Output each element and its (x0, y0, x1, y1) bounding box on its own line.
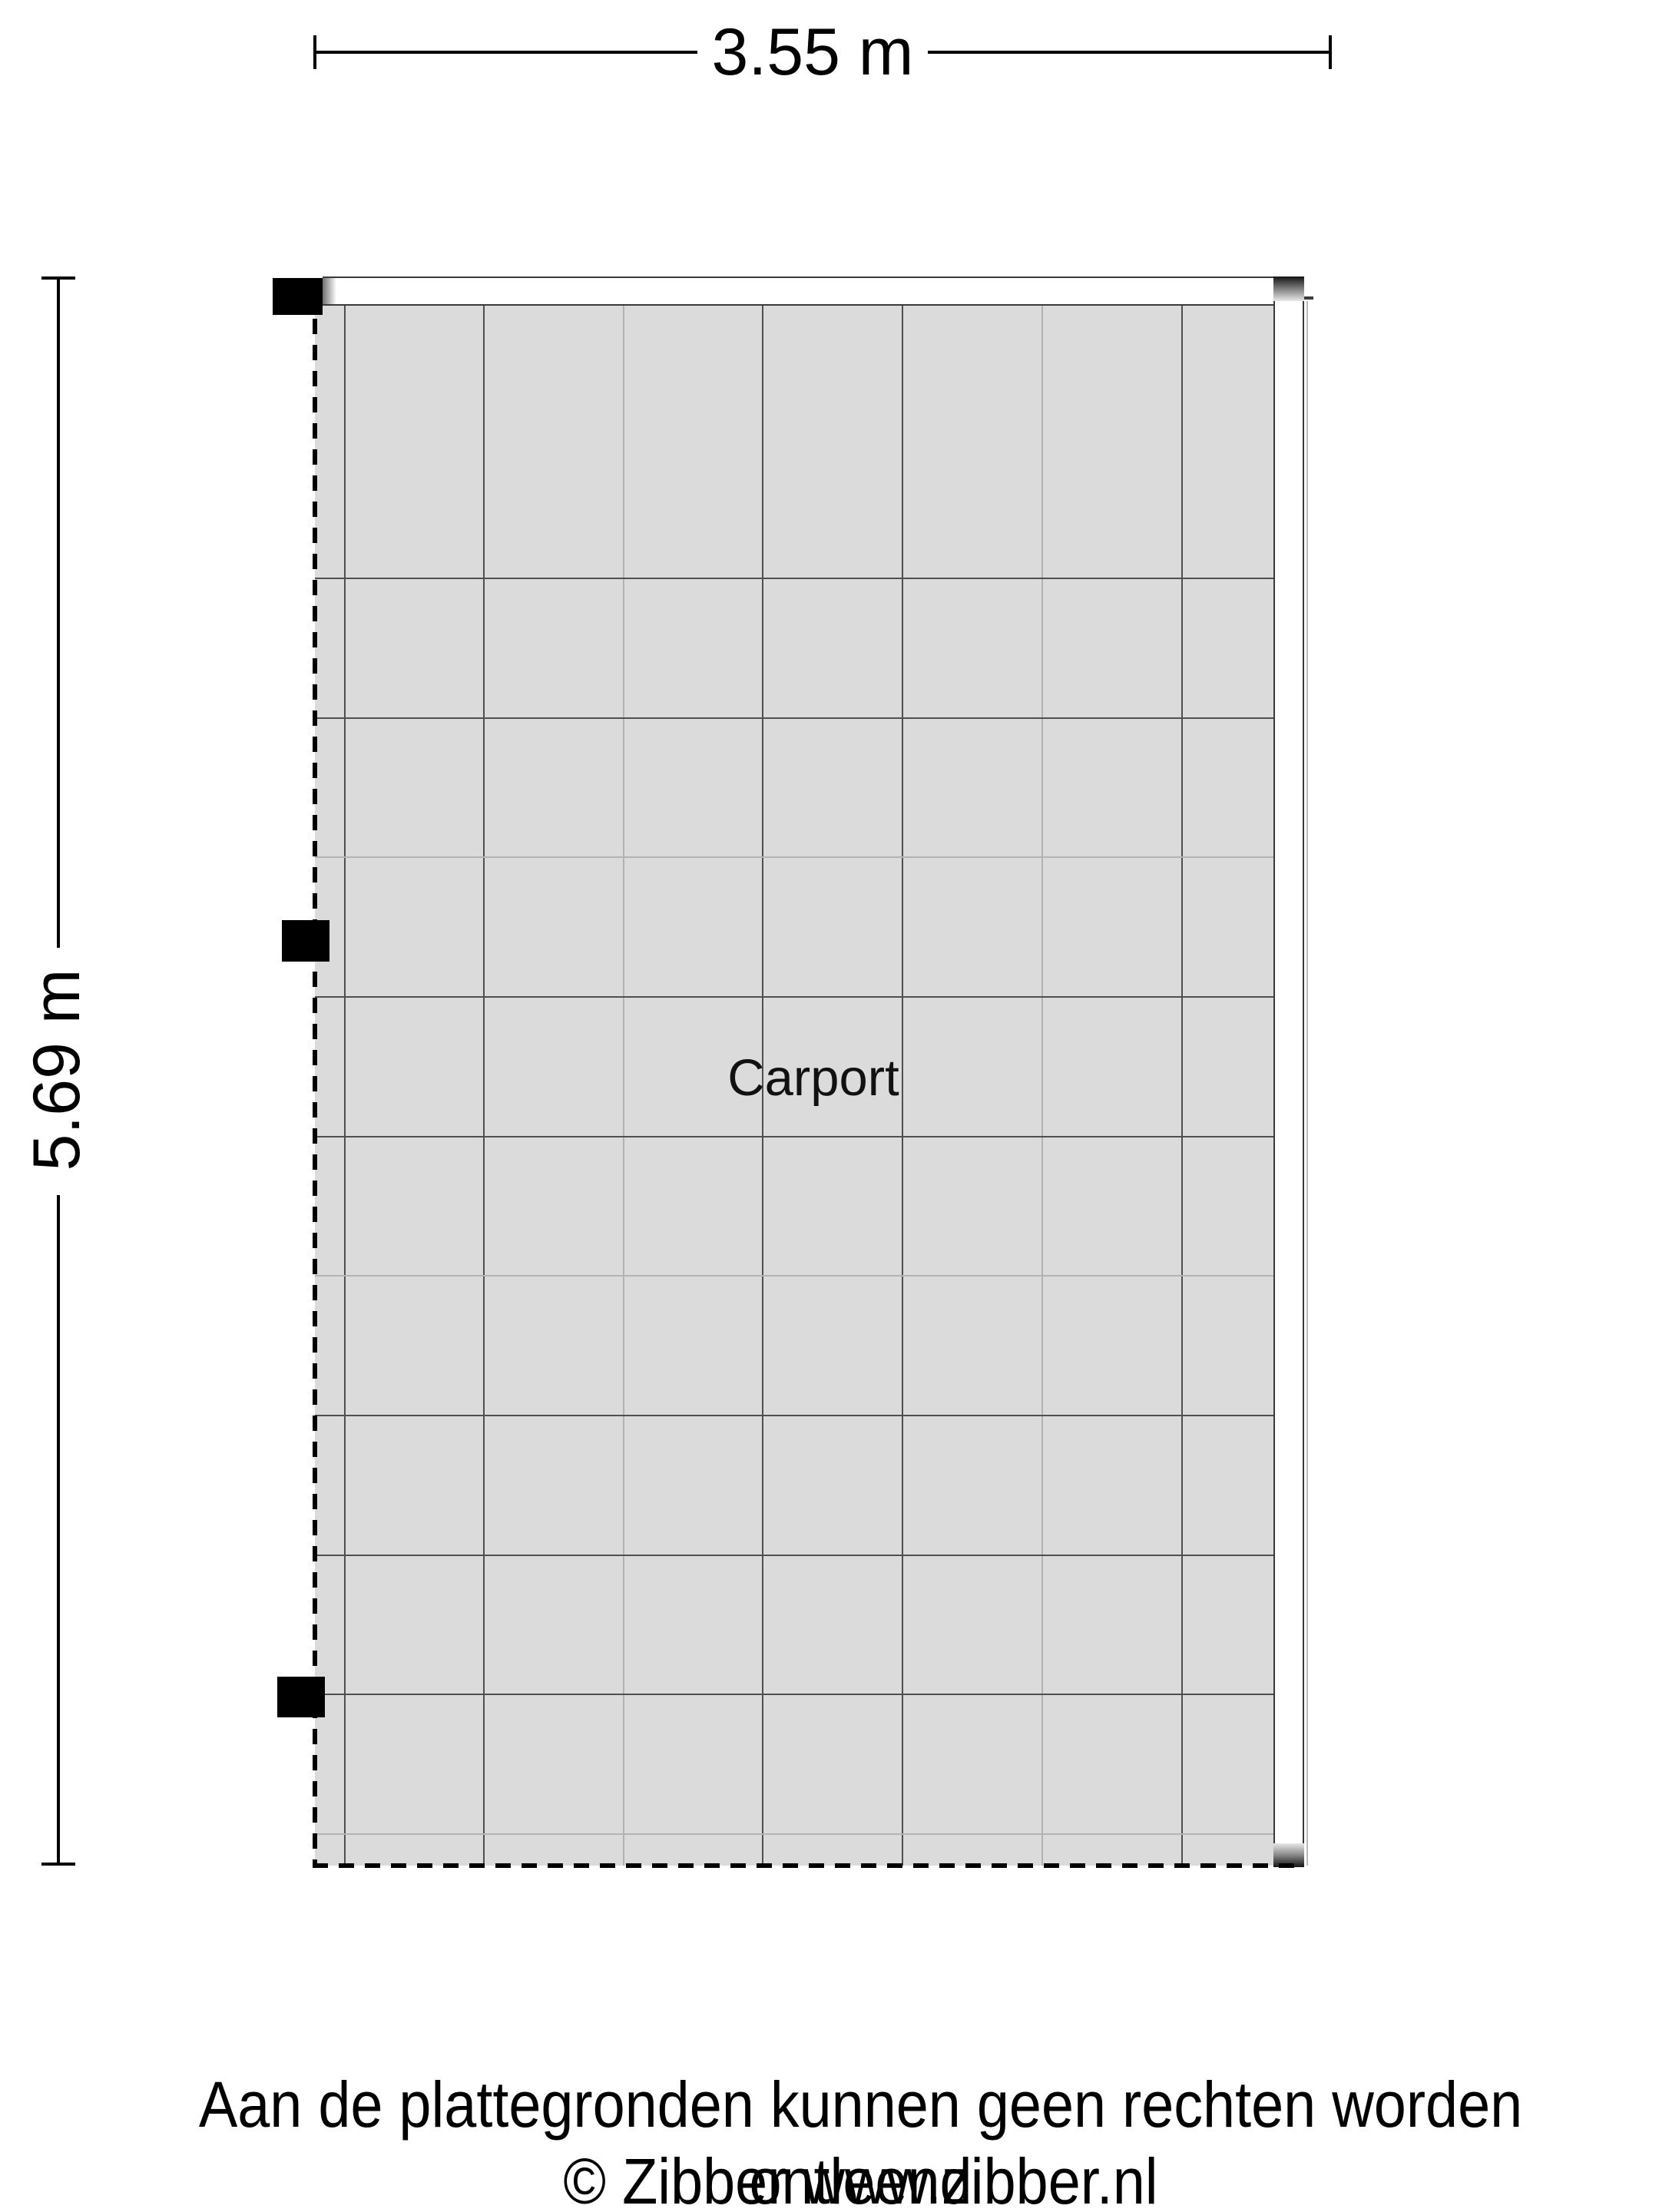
top-dimension-left-tick (313, 35, 316, 69)
room-label: Carport (660, 1043, 967, 1114)
grid-line-vertical (344, 306, 346, 1866)
grid-line-vertical (483, 306, 485, 1866)
roof-edge-top-band (323, 276, 1273, 306)
grid-line-horizontal (315, 856, 1273, 858)
grid-line-horizontal (315, 1694, 1273, 1695)
left-dimension-line-top-segment (57, 278, 60, 948)
grid-line-horizontal (315, 1275, 1273, 1277)
copyright-text: © Zibber www.zibber.nl (83, 2143, 1576, 2212)
grid-line-horizontal (315, 1833, 1273, 1835)
top-dimension-right-tick (1329, 35, 1332, 69)
top-dimension-line-left-segment (315, 51, 697, 54)
grid-line-horizontal (315, 1555, 1273, 1556)
grid-line-horizontal (315, 717, 1273, 719)
open-side-left-dashed-line (313, 319, 317, 1868)
grid-line-horizontal (315, 1136, 1273, 1137)
roof-edge-right-band (1273, 276, 1304, 1867)
grid-line-horizontal (315, 996, 1273, 998)
left-dimension-top-tick (41, 276, 75, 280)
left-dimension-line-bottom-segment (57, 1195, 60, 1866)
roof-edge-corner-tick (1304, 296, 1313, 300)
width-dimension-label: 3.55 m (697, 17, 928, 88)
height-dimension-label: 5.69 m (22, 955, 92, 1185)
roof-edge-top-corner-cap (1273, 276, 1304, 301)
carport-post (277, 1677, 325, 1717)
carport-post (282, 920, 329, 962)
grid-line-horizontal (315, 578, 1273, 579)
grid-line-horizontal (315, 1415, 1273, 1416)
top-dimension-line-right-segment (928, 51, 1332, 54)
carport-post (273, 278, 323, 315)
left-dimension-bottom-tick (41, 1863, 75, 1866)
grid-line-vertical (623, 306, 624, 1866)
open-side-bottom-dashed-line (313, 1863, 1301, 1868)
grid-line-vertical (1041, 306, 1043, 1866)
floorplan-canvas: 3.55 m 5.69 m Carport Aan de plattegrond… (0, 0, 1659, 2212)
grid-line-vertical (1181, 306, 1183, 1866)
roof-edge-top-band-shadow (323, 278, 336, 304)
roof-edge-right-outer-line (1306, 301, 1308, 1866)
